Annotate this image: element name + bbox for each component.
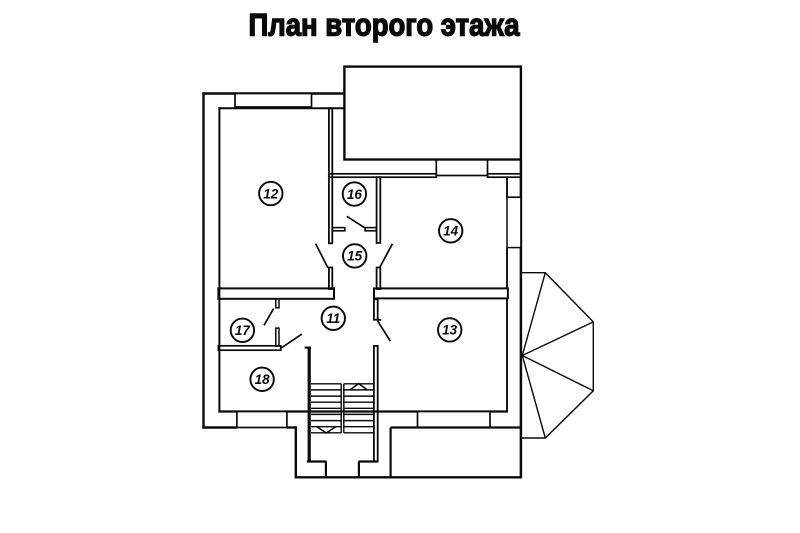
svg-text:12: 12 (263, 186, 279, 201)
svg-text:11: 11 (326, 311, 340, 326)
svg-text:17: 17 (235, 323, 252, 338)
svg-text:18: 18 (255, 372, 271, 387)
svg-text:16: 16 (347, 187, 363, 202)
svg-text:План второго этажа: План второго этажа (249, 6, 520, 42)
svg-text:13: 13 (442, 323, 458, 338)
svg-text:14: 14 (443, 224, 459, 239)
svg-text:15: 15 (347, 249, 363, 264)
